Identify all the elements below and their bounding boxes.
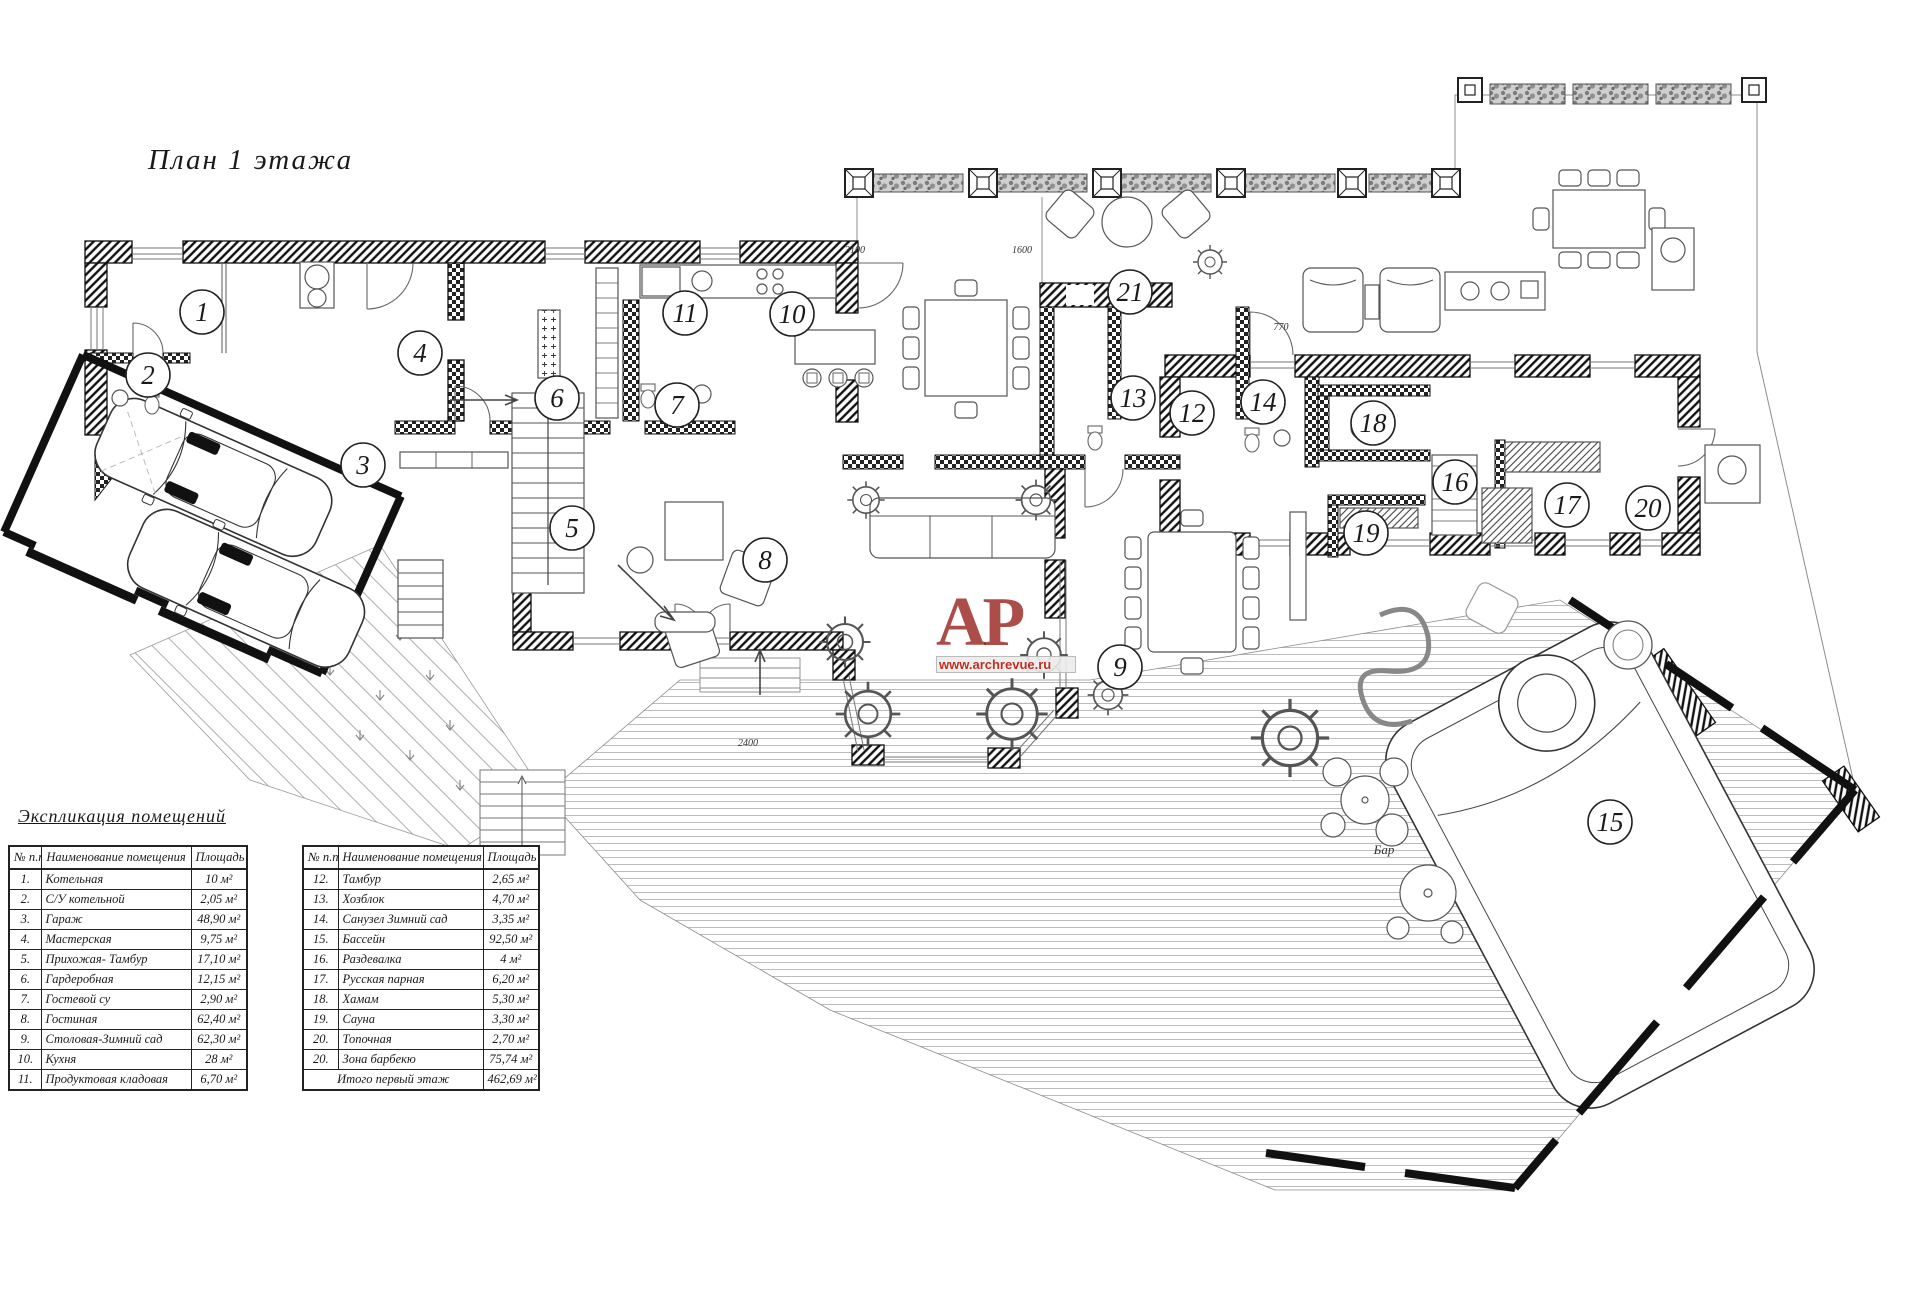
table-row: 20.Зона барбекю75,74 м²: [303, 1050, 539, 1070]
room-marker-15: 15: [1588, 800, 1632, 844]
table-header: № п.п.Наименование помещенияПлощадь: [303, 846, 539, 869]
table-row: 15.Бассейн92,50 м²: [303, 930, 539, 950]
table-row: 10.Кухня28 м²: [9, 1050, 247, 1070]
dim-label: 3100: [844, 245, 865, 256]
svg-text:8: 8: [758, 545, 772, 575]
room-marker-13: 13: [1111, 376, 1155, 420]
table-row: 18.Хамам5,30 м²: [303, 990, 539, 1010]
table-row: 11.Продуктовая кладовая6,70 м²: [9, 1070, 247, 1091]
explication-table-1: № п.п.Наименование помещенияПлощадь1.Кот…: [8, 845, 248, 1091]
room-marker-10: 10: [770, 292, 814, 336]
blueprint-canvas: План 1 этажа: [0, 0, 1919, 1311]
room-marker-5: 5: [550, 506, 594, 550]
svg-text:16: 16: [1442, 467, 1470, 497]
svg-text:6: 6: [550, 383, 564, 413]
sun-loungers: [1303, 268, 1440, 332]
svg-text:4: 4: [413, 338, 427, 368]
room-marker-3: 3: [341, 443, 385, 487]
svg-text:3: 3: [355, 450, 370, 480]
table-header: № п.п.Наименование помещенияПлощадь: [9, 846, 247, 869]
svg-text:11: 11: [673, 298, 698, 328]
room-marker-8: 8: [743, 538, 787, 582]
svg-text:7: 7: [670, 390, 685, 420]
banya-bench-1: [1505, 442, 1600, 472]
svg-text:20: 20: [1635, 493, 1663, 523]
floor-plan-drawing: 123456789101112131415161718192021 310016…: [0, 0, 1919, 1311]
svg-text:19: 19: [1353, 518, 1381, 548]
room-marker-17: 17: [1545, 483, 1589, 527]
exterior-steps: [480, 770, 565, 855]
svg-text:12: 12: [1179, 398, 1206, 428]
bbq-oven: [1705, 445, 1760, 503]
banya-bench-2: [1482, 488, 1532, 543]
table-row: 17.Русская парная6,20 м²: [303, 970, 539, 990]
room-marker-7: 7: [655, 383, 699, 427]
table-row: 20.Топочная2,70 м²: [303, 1030, 539, 1050]
svg-text:5: 5: [565, 513, 579, 543]
table-row: 13.Хозблок4,70 м²: [303, 890, 539, 910]
svg-text:18: 18: [1360, 408, 1388, 438]
kitchen-island: [795, 330, 875, 387]
room-marker-6: 6: [535, 376, 579, 420]
svg-text:9: 9: [1113, 652, 1127, 682]
garage-door-1: [25, 547, 138, 604]
svg-text:21: 21: [1117, 277, 1144, 307]
kitchen-counter: [640, 265, 836, 298]
svg-text:2: 2: [141, 360, 155, 390]
table-row: 4.Мастерская9,75 м²: [9, 930, 247, 950]
dim-label: 2400: [738, 738, 758, 749]
room-marker-11: 11: [663, 291, 707, 335]
table-row: 7.Гостевой су2,90 м²: [9, 990, 247, 1010]
boiler-unit: [300, 262, 334, 308]
room-marker-21: 21: [1108, 270, 1152, 314]
table-row: 5.Прихожая- Тамбур17,10 м²: [9, 950, 247, 970]
room-marker-4: 4: [398, 331, 442, 375]
kitchen-dining-set: [903, 280, 1029, 418]
explication-table-2: № п.п.Наименование помещенияПлощадь12.Та…: [302, 845, 540, 1091]
room-marker-1: 1: [180, 290, 224, 334]
table-total-row: Итого первый этаж462,69 м²: [303, 1070, 539, 1091]
table-row: 16.Раздевалка4 м²: [303, 950, 539, 970]
room-marker-19: 19: [1344, 511, 1388, 555]
svg-text:15: 15: [1597, 807, 1624, 837]
dim-label: 1600: [1012, 245, 1032, 256]
table-row: 14.Санузел Зимний сад3,35 м²: [303, 910, 539, 930]
room-marker-2: 2: [126, 353, 170, 397]
svg-text:14: 14: [1250, 387, 1277, 417]
table-row: 1.Котельная10 м²: [9, 869, 247, 890]
room-marker-14: 14: [1241, 380, 1285, 424]
room-marker-18: 18: [1351, 401, 1395, 445]
svg-text:13: 13: [1120, 383, 1147, 413]
room-marker-9: 9: [1098, 645, 1142, 689]
dim-label: 770: [1274, 322, 1289, 333]
table-row: 8.Гостиная62,40 м²: [9, 1010, 247, 1030]
room-marker-16: 16: [1433, 460, 1477, 504]
svg-text:10: 10: [779, 299, 807, 329]
room-marker-20: 20: [1626, 486, 1670, 530]
table-row: 3.Гараж48,90 м²: [9, 910, 247, 930]
table-row: 19.Сауна3,30 м²: [303, 1010, 539, 1030]
room-marker-12: 12: [1170, 391, 1214, 435]
svg-text:1: 1: [195, 297, 209, 327]
outdoor-dining-set: [1533, 170, 1694, 290]
table-row: 12.Тамбур2,65 м²: [303, 869, 539, 890]
svg-text:17: 17: [1554, 490, 1583, 520]
table-row: 9.Столовая-Зимний сад62,30 м²: [9, 1030, 247, 1050]
explication-heading: Экспликация помещений: [18, 806, 226, 827]
table-row: 6.Гардеробная12,15 м²: [9, 970, 247, 990]
table-row: 2.С/У котельной2,05 м²: [9, 890, 247, 910]
dim-label: Бар: [1373, 842, 1395, 857]
entrance-porch: [700, 658, 800, 692]
